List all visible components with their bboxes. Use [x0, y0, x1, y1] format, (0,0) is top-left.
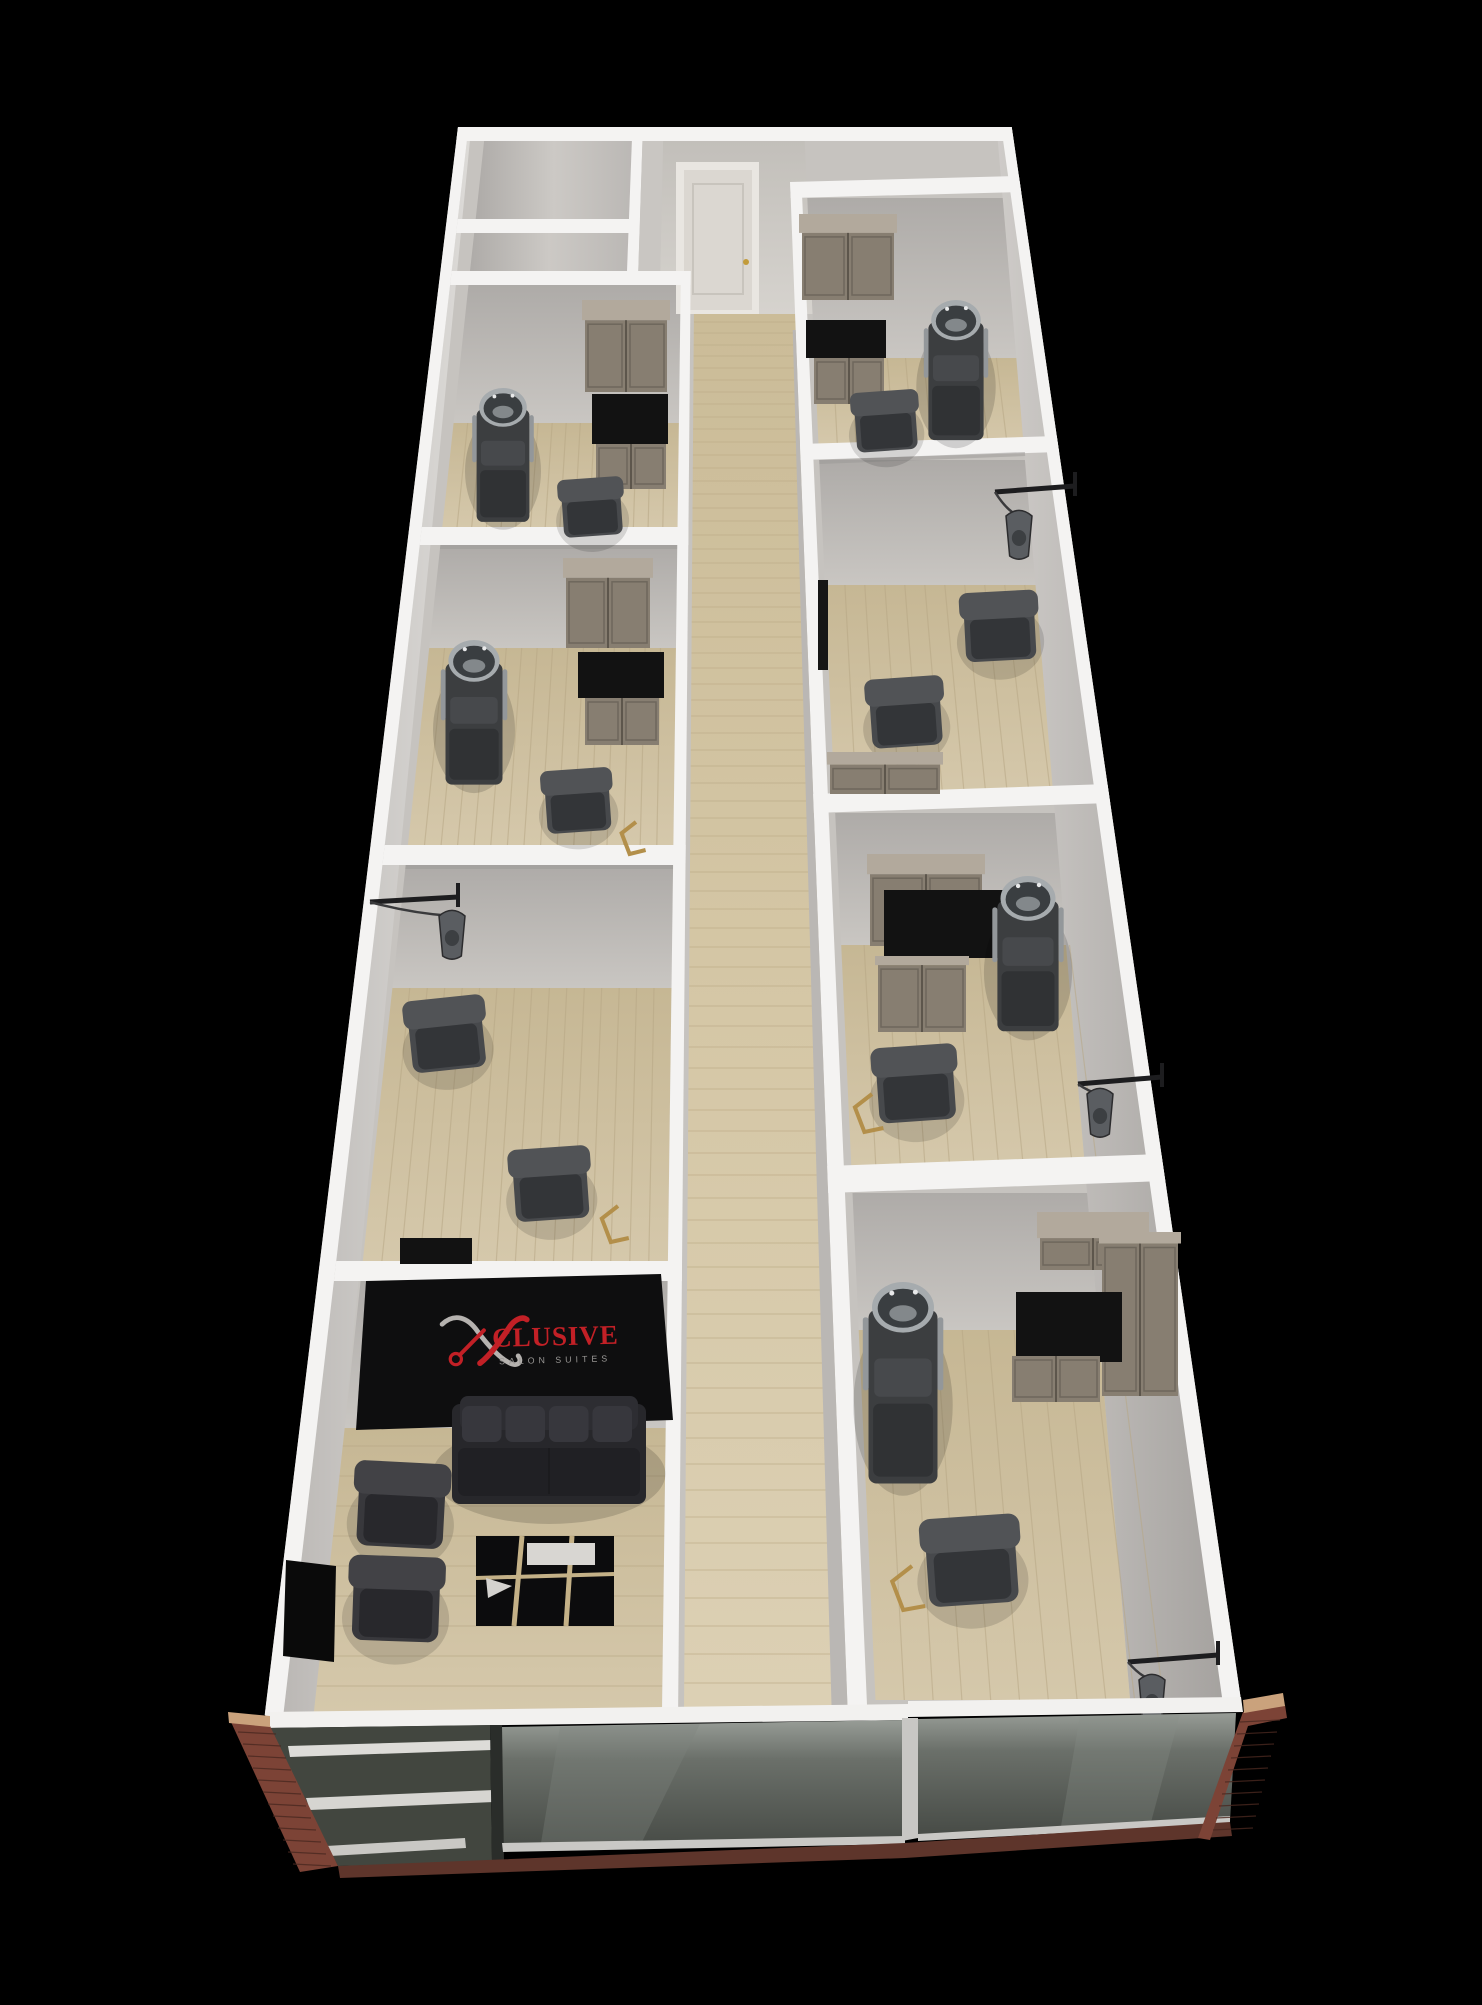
svg-text:CLUSIVE: CLUSIVE	[492, 1320, 619, 1353]
